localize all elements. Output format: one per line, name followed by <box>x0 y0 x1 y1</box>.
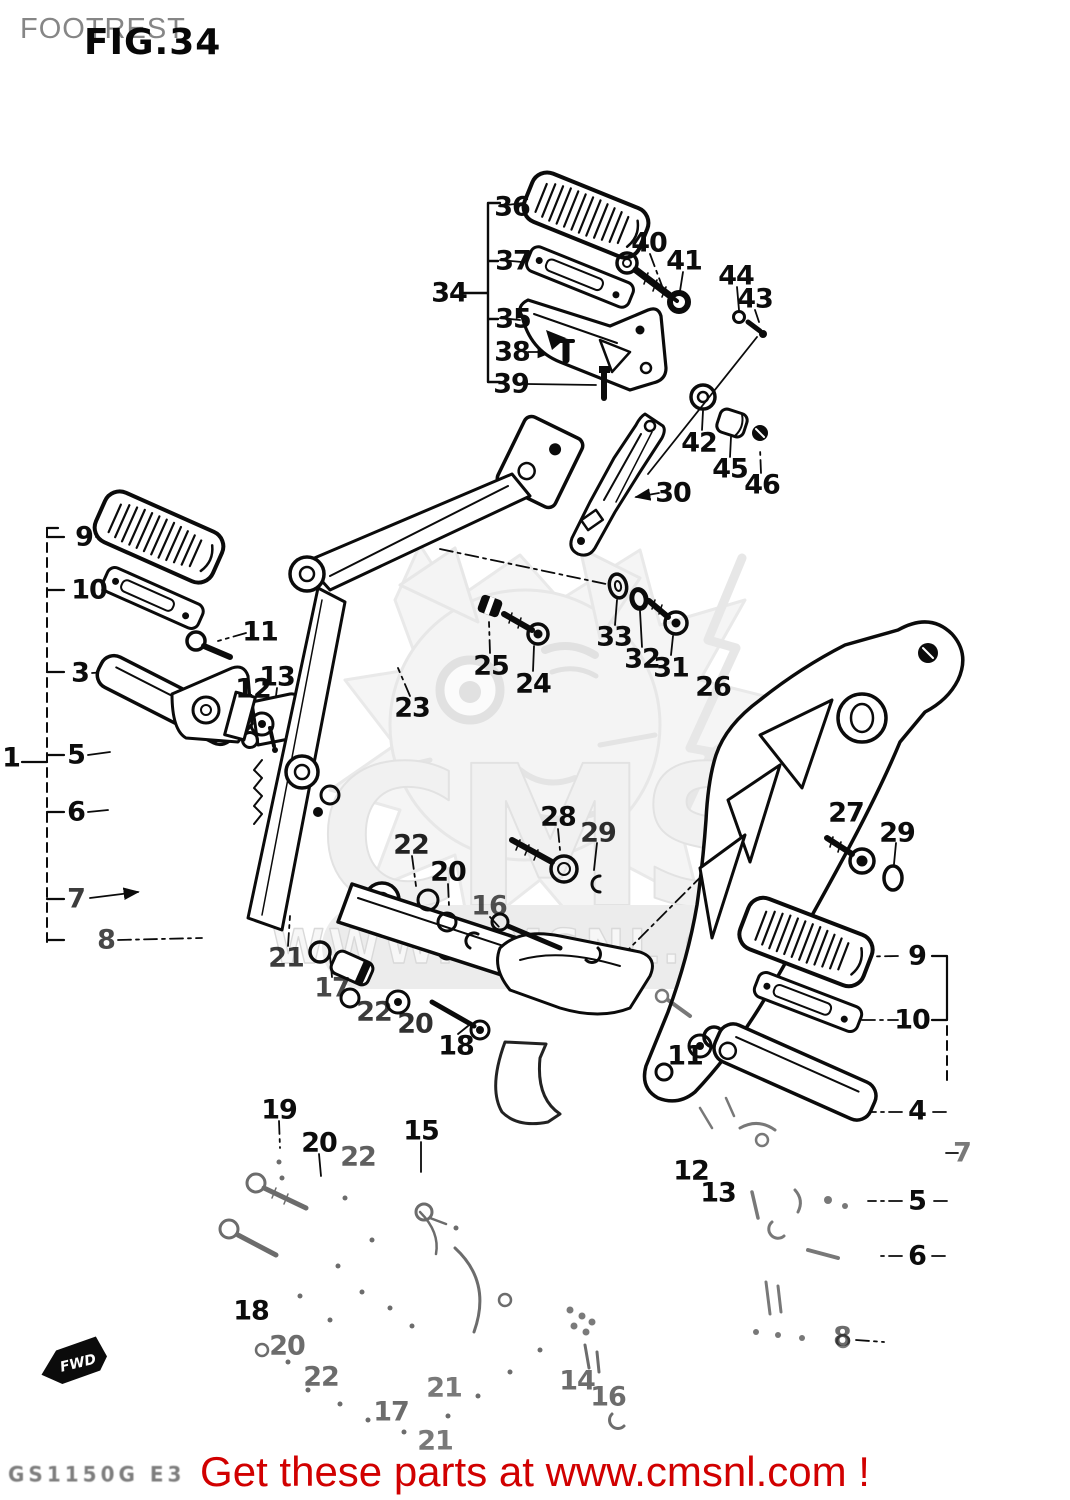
spacer-45 <box>715 407 749 438</box>
bolt-19-20 <box>247 1174 306 1208</box>
frame-boss <box>290 557 324 591</box>
pin-43 <box>748 322 767 338</box>
snap-ring-44 <box>734 312 745 323</box>
bolt-lower <box>220 1220 276 1255</box>
exploded-diagram: CMS WWW.CMSNL.COM <box>0 0 1070 1500</box>
parts-diagram-page: CMS WWW.CMSNL.COM <box>0 0 1070 1500</box>
hook-15 <box>416 1204 459 1231</box>
figure-number: FIG.34 <box>84 22 221 63</box>
washer-41 <box>670 293 688 311</box>
frame-pivot-plate <box>172 667 255 742</box>
o-ring-29-right <box>884 866 902 890</box>
nut-46 <box>752 425 768 441</box>
frame-guard <box>496 1042 560 1124</box>
hanger-bracket-30 <box>571 414 664 555</box>
footrest-bar-4 <box>709 1019 881 1125</box>
fwd-arrow-icon: FWD <box>36 1335 111 1388</box>
promo-link-text[interactable]: Get these parts at www.cmsnl.com ! <box>0 1448 1070 1496</box>
footrest-holder-35 <box>520 300 666 390</box>
faded-bottom-cluster <box>220 1160 624 1435</box>
bolt-11-left <box>187 632 230 657</box>
